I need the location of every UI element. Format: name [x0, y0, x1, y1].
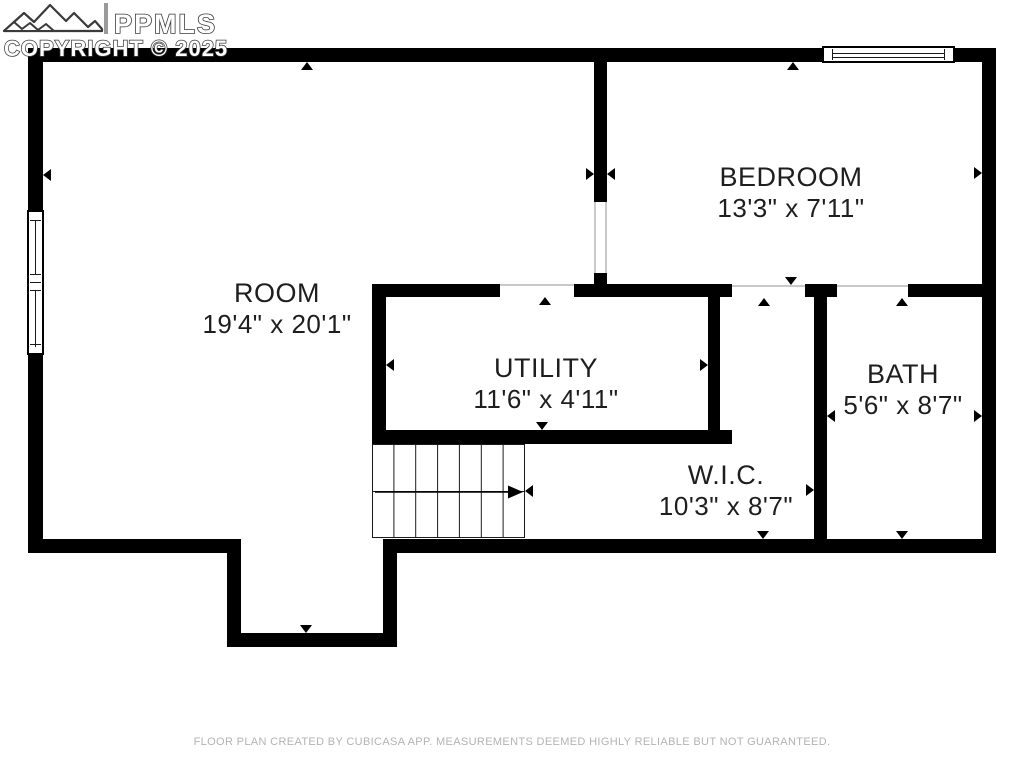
- measure-arrow-up-icon: [787, 62, 799, 70]
- measure-arrow-left-icon: [827, 410, 835, 422]
- room-name: ROOM: [97, 277, 457, 309]
- watermark-copyright: COPYRIGHT © 2025: [4, 36, 228, 61]
- window-left: [27, 210, 44, 355]
- measure-arrow-left-icon: [386, 359, 394, 371]
- wall-protrusion-left: [227, 539, 241, 647]
- wall-bedroom-divider-upper: [594, 62, 607, 202]
- measure-arrow-down-icon: [896, 531, 908, 539]
- wall-left-lower-segment: [28, 355, 43, 553]
- door-opening-wic: [732, 285, 805, 287]
- room-name: BEDROOM: [641, 161, 941, 193]
- wall-protrusion-bottom: [227, 633, 397, 647]
- door-opening-bedroom-left-jamb: [594, 202, 596, 273]
- room-label-room: ROOM 19'4" x 20'1": [97, 277, 457, 339]
- wall-right: [982, 48, 996, 553]
- door-opening-bedroom-right-jamb: [605, 202, 607, 273]
- room-label-bath: BATH 5'6" x 8'7": [823, 358, 983, 420]
- wall-utility-right: [708, 296, 720, 430]
- room-dimensions: 11'6" x 4'11": [396, 384, 696, 414]
- room-label-utility: UTILITY 11'6" x 4'11": [396, 352, 696, 414]
- measure-arrow-left-icon: [43, 169, 51, 181]
- wall-left-upper-segment: [28, 48, 43, 210]
- measure-arrow-up-icon: [539, 297, 551, 305]
- room-label-bedroom: BEDROOM 13'3" x 7'11": [641, 161, 941, 223]
- mountain-peaks-icon: [4, 5, 102, 31]
- measure-arrow-left-icon: [525, 485, 533, 497]
- floor-plan-canvas: ROOM 19'4" x 20'1" BEDROOM 13'3" x 7'11"…: [0, 0, 1024, 767]
- wall-utility-bottom: [372, 430, 732, 444]
- room-name: BATH: [823, 358, 983, 390]
- window-top: [822, 46, 955, 63]
- watermark-divider: [104, 3, 108, 34]
- wall-bottom-left-segment: [28, 539, 241, 553]
- ppmls-watermark: PPMLS COPYRIGHT © 2025: [0, 0, 260, 62]
- door-opening-bath: [837, 285, 908, 287]
- measure-arrow-right-icon: [586, 168, 594, 180]
- measure-arrow-up-icon: [301, 62, 313, 70]
- measure-arrow-right-icon: [806, 484, 814, 496]
- measure-arrow-right-icon: [974, 167, 982, 179]
- room-dimensions: 19'4" x 20'1": [97, 309, 457, 339]
- measure-arrow-left-icon: [607, 168, 615, 180]
- wall-bottom-right-segment: [383, 539, 996, 553]
- measure-arrow-down-icon: [300, 625, 312, 633]
- door-opening-utility: [500, 284, 574, 286]
- measure-arrow-down-icon: [757, 531, 769, 539]
- footer-disclaimer: FLOOR PLAN CREATED BY CUBICASA APP. MEAS…: [0, 736, 1024, 748]
- measure-arrow-up-icon: [758, 298, 770, 306]
- room-dimensions: 13'3" x 7'11": [641, 193, 941, 223]
- measure-arrow-up-icon: [896, 298, 908, 306]
- room-dimensions: 5'6" x 8'7": [823, 390, 983, 420]
- wall-protrusion-right: [383, 539, 397, 647]
- measure-arrow-right-icon: [700, 359, 708, 371]
- staircase: [372, 444, 525, 538]
- measure-arrow-down-icon: [536, 422, 548, 430]
- wall-bath-top: [908, 284, 996, 297]
- measure-arrow-right-icon: [974, 410, 982, 422]
- room-name: UTILITY: [396, 352, 696, 384]
- measure-arrow-down-icon: [785, 277, 797, 285]
- watermark-brand: PPMLS: [114, 9, 217, 39]
